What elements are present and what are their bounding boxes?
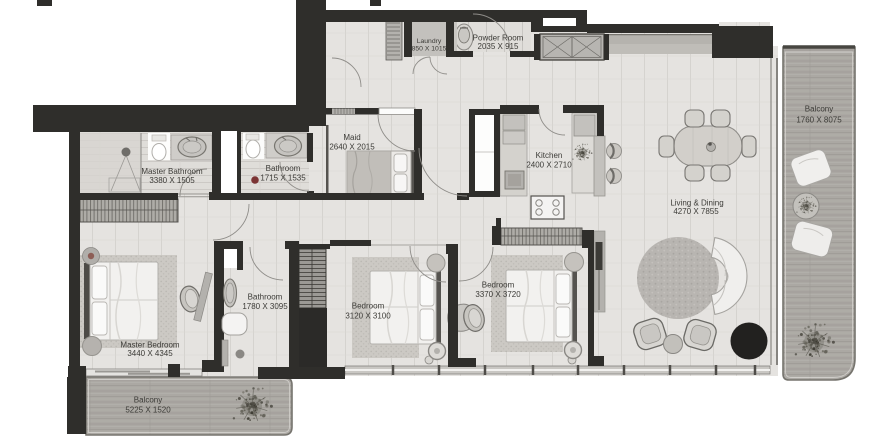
svg-text:Bedroom: Bedroom	[482, 281, 515, 290]
svg-text:3440 X 4345: 3440 X 4345	[127, 349, 173, 358]
svg-text:Bedroom: Bedroom	[352, 302, 385, 311]
svg-text:Bathroom: Bathroom	[266, 164, 301, 173]
svg-text:1760 X 8075: 1760 X 8075	[796, 116, 842, 125]
svg-text:850 X 1015: 850 X 1015	[412, 46, 447, 53]
svg-text:2400 X 2710: 2400 X 2710	[526, 161, 572, 170]
svg-text:5225 X 1520: 5225 X 1520	[125, 406, 171, 415]
svg-text:Bathroom: Bathroom	[248, 293, 283, 302]
svg-text:Kitchen: Kitchen	[536, 151, 563, 160]
svg-text:3380 X 1505: 3380 X 1505	[149, 176, 195, 185]
svg-text:2640 X 2015: 2640 X 2015	[329, 143, 375, 152]
svg-text:4270 X 7855: 4270 X 7855	[673, 207, 719, 216]
svg-text:3120 X 3100: 3120 X 3100	[345, 312, 391, 321]
svg-text:1715 X 1535: 1715 X 1535	[260, 174, 306, 183]
svg-text:Balcony: Balcony	[805, 105, 833, 114]
svg-text:2035 X 915: 2035 X 915	[478, 42, 519, 51]
svg-text:Laundry: Laundry	[417, 38, 442, 45]
svg-text:3370 X 3720: 3370 X 3720	[475, 290, 521, 299]
svg-text:Maid: Maid	[343, 133, 360, 142]
svg-text:1780 X 3095: 1780 X 3095	[242, 302, 288, 311]
svg-text:Balcony: Balcony	[134, 396, 162, 405]
svg-text:Master Bathroom: Master Bathroom	[141, 167, 203, 176]
